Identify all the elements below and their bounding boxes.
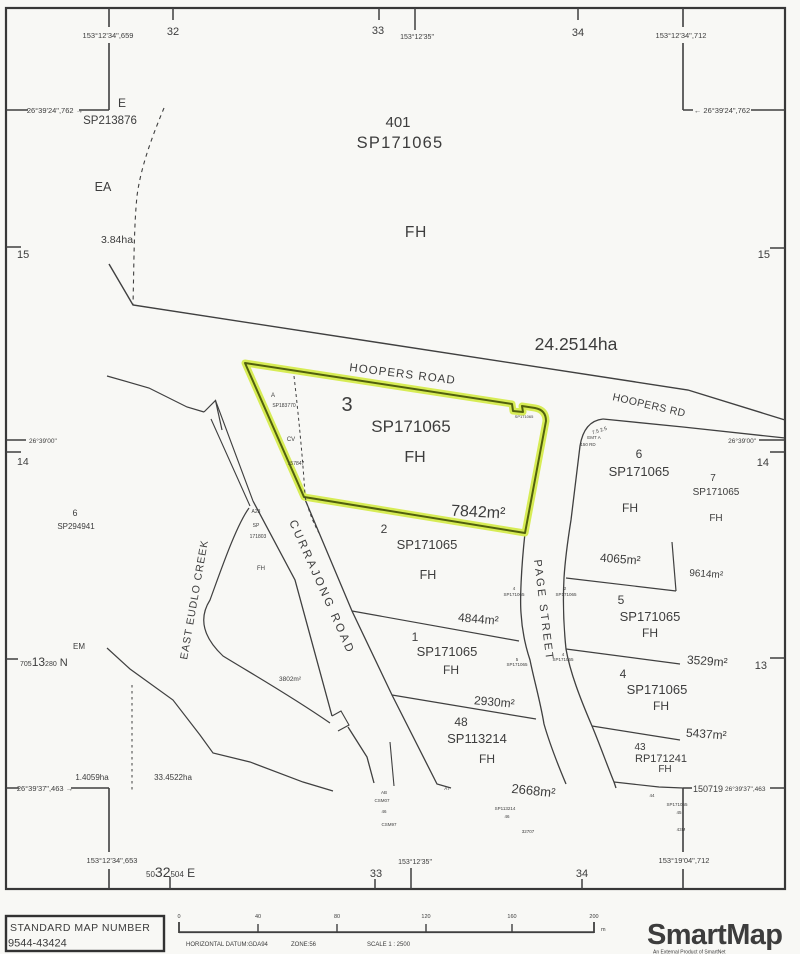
svg-text:SP171065: SP171065 bbox=[552, 657, 574, 662]
svg-text:SP171065: SP171065 bbox=[397, 537, 458, 552]
svg-text:46: 46 bbox=[381, 809, 387, 814]
svg-text:26°39'00": 26°39'00" bbox=[728, 437, 757, 445]
svg-text:FH: FH bbox=[404, 449, 425, 466]
svg-text:150719: 150719 bbox=[693, 784, 723, 794]
svg-text:3802m²: 3802m² bbox=[279, 676, 302, 683]
svg-text:14: 14 bbox=[757, 457, 769, 469]
svg-text:← 26°39'24",762: ← 26°39'24",762 bbox=[694, 106, 750, 115]
svg-text:7842m²: 7842m² bbox=[451, 503, 507, 523]
svg-text:120: 120 bbox=[421, 914, 430, 920]
svg-text:m: m bbox=[601, 927, 606, 933]
svg-text:CSM07: CSM07 bbox=[374, 798, 390, 803]
svg-text:153°12'35": 153°12'35" bbox=[398, 858, 432, 866]
svg-text:7: 7 bbox=[710, 473, 716, 484]
svg-text:SP183770: SP183770 bbox=[272, 403, 296, 409]
svg-text:26°39'24",762 →: 26°39'24",762 → bbox=[27, 106, 83, 115]
svg-text:EMT A: EMT A bbox=[587, 435, 600, 440]
svg-text:ZONE:56: ZONE:56 bbox=[291, 942, 317, 948]
svg-text:14: 14 bbox=[17, 456, 29, 468]
svg-text:34: 34 bbox=[572, 27, 584, 39]
svg-text:150 RD: 150 RD bbox=[580, 442, 596, 447]
svg-text:26°39'37",463: 26°39'37",463 bbox=[725, 785, 766, 793]
svg-text:A7: A7 bbox=[444, 786, 450, 791]
svg-text:40: 40 bbox=[255, 914, 261, 920]
svg-text:0: 0 bbox=[177, 914, 180, 920]
svg-text:200: 200 bbox=[589, 914, 598, 920]
svg-text:3529m²: 3529m² bbox=[686, 653, 728, 670]
svg-text:33.4522ha: 33.4522ha bbox=[154, 773, 192, 782]
svg-text:44: 44 bbox=[649, 793, 655, 798]
svg-text:EM: EM bbox=[73, 642, 85, 651]
svg-text:46: 46 bbox=[504, 814, 510, 819]
svg-text:34: 34 bbox=[576, 868, 588, 880]
svg-text:SmartMap: SmartMap bbox=[647, 919, 782, 951]
svg-text:5: 5 bbox=[618, 593, 625, 607]
svg-text:80: 80 bbox=[334, 914, 340, 920]
svg-text:STANDARD MAP NUMBER: STANDARD MAP NUMBER bbox=[10, 922, 150, 934]
svg-text:SP294941: SP294941 bbox=[57, 522, 95, 531]
svg-text:2: 2 bbox=[381, 522, 388, 536]
svg-text:EA: EA bbox=[95, 180, 112, 194]
svg-text:SP171065: SP171065 bbox=[506, 662, 528, 667]
svg-text:6: 6 bbox=[72, 508, 77, 518]
svg-text:153°12'35": 153°12'35" bbox=[400, 33, 434, 41]
svg-text:3.84ha: 3.84ha bbox=[101, 234, 133, 246]
svg-text:153°12'34",659: 153°12'34",659 bbox=[83, 31, 134, 40]
svg-text:32707: 32707 bbox=[522, 829, 535, 834]
svg-text:SP171065: SP171065 bbox=[371, 417, 450, 436]
svg-text:5437m²: 5437m² bbox=[685, 726, 727, 743]
svg-text:1.4059ha: 1.4059ha bbox=[75, 773, 109, 782]
svg-text:A23: A23 bbox=[252, 509, 261, 515]
svg-text:SP171065: SP171065 bbox=[666, 802, 688, 807]
svg-text:SP113214: SP113214 bbox=[495, 806, 516, 811]
svg-text:SP171065: SP171065 bbox=[609, 464, 670, 479]
svg-text:43: 43 bbox=[634, 742, 646, 753]
svg-text:FH: FH bbox=[420, 568, 437, 582]
svg-text:SP171065: SP171065 bbox=[620, 609, 681, 624]
svg-text:A: A bbox=[271, 393, 275, 399]
svg-text:E: E bbox=[118, 96, 126, 110]
svg-text:SP171065: SP171065 bbox=[503, 592, 525, 597]
svg-text:43M: 43M bbox=[677, 827, 686, 832]
svg-text:13: 13 bbox=[755, 660, 767, 672]
svg-text:15: 15 bbox=[17, 249, 29, 261]
svg-text:32: 32 bbox=[167, 26, 179, 38]
svg-text:FH: FH bbox=[257, 566, 265, 572]
svg-text:FH: FH bbox=[658, 764, 671, 775]
svg-text:SP171065: SP171065 bbox=[357, 134, 444, 152]
svg-text:153°12'34",653: 153°12'34",653 bbox=[87, 856, 138, 865]
svg-text:SP: SP bbox=[253, 523, 260, 529]
svg-text:171803: 171803 bbox=[250, 534, 267, 540]
svg-text:45: 45 bbox=[676, 810, 682, 815]
svg-text:SP113214: SP113214 bbox=[447, 731, 507, 746]
svg-text:4065m²: 4065m² bbox=[599, 551, 641, 568]
svg-text:401: 401 bbox=[385, 114, 410, 131]
svg-text:SP171065: SP171065 bbox=[555, 592, 577, 597]
svg-text:CV: CV bbox=[287, 437, 295, 443]
svg-text:24.2514ha: 24.2514ha bbox=[535, 334, 618, 354]
svg-text:153°12'34",712: 153°12'34",712 bbox=[656, 31, 707, 40]
svg-text:153°19'04",712: 153°19'04",712 bbox=[659, 856, 710, 865]
svg-text:33: 33 bbox=[370, 868, 382, 880]
svg-text:26°39'37",463 →: 26°39'37",463 → bbox=[17, 784, 73, 793]
svg-text:An External Product of SmartNe: An External Product of SmartNet bbox=[653, 950, 726, 954]
svg-text:1: 1 bbox=[412, 630, 419, 644]
svg-text:CSM97: CSM97 bbox=[381, 822, 397, 827]
svg-text:9544-43424: 9544-43424 bbox=[8, 938, 67, 950]
svg-text:15: 15 bbox=[758, 249, 770, 261]
svg-text:FH: FH bbox=[622, 501, 638, 515]
svg-text:FH: FH bbox=[405, 224, 427, 241]
svg-text:48: 48 bbox=[454, 715, 468, 729]
svg-text:SP171065: SP171065 bbox=[515, 414, 534, 419]
svg-text:SP213876: SP213876 bbox=[83, 115, 137, 127]
svg-text:SP171065: SP171065 bbox=[417, 644, 478, 659]
svg-text:6: 6 bbox=[636, 447, 643, 461]
svg-text:SP171065: SP171065 bbox=[693, 487, 740, 498]
svg-text:160: 160 bbox=[507, 914, 516, 920]
svg-text:SP171065: SP171065 bbox=[627, 682, 688, 697]
svg-text:157847: 157847 bbox=[288, 461, 305, 467]
svg-text:FH: FH bbox=[443, 663, 459, 677]
svg-text:26°39'00": 26°39'00" bbox=[29, 437, 58, 445]
svg-text:FH: FH bbox=[653, 699, 669, 713]
svg-text:HORIZONTAL DATUM:GDA94: HORIZONTAL DATUM:GDA94 bbox=[186, 942, 269, 948]
svg-text:SCALE 1 : 2500: SCALE 1 : 2500 bbox=[367, 942, 411, 948]
svg-text:FH: FH bbox=[709, 513, 722, 524]
svg-text:33: 33 bbox=[372, 25, 384, 37]
svg-text:3: 3 bbox=[341, 394, 352, 416]
svg-text:AB: AB bbox=[381, 790, 387, 795]
svg-text:FH: FH bbox=[479, 752, 495, 766]
svg-text:FH: FH bbox=[642, 626, 658, 640]
svg-text:4: 4 bbox=[620, 667, 627, 681]
